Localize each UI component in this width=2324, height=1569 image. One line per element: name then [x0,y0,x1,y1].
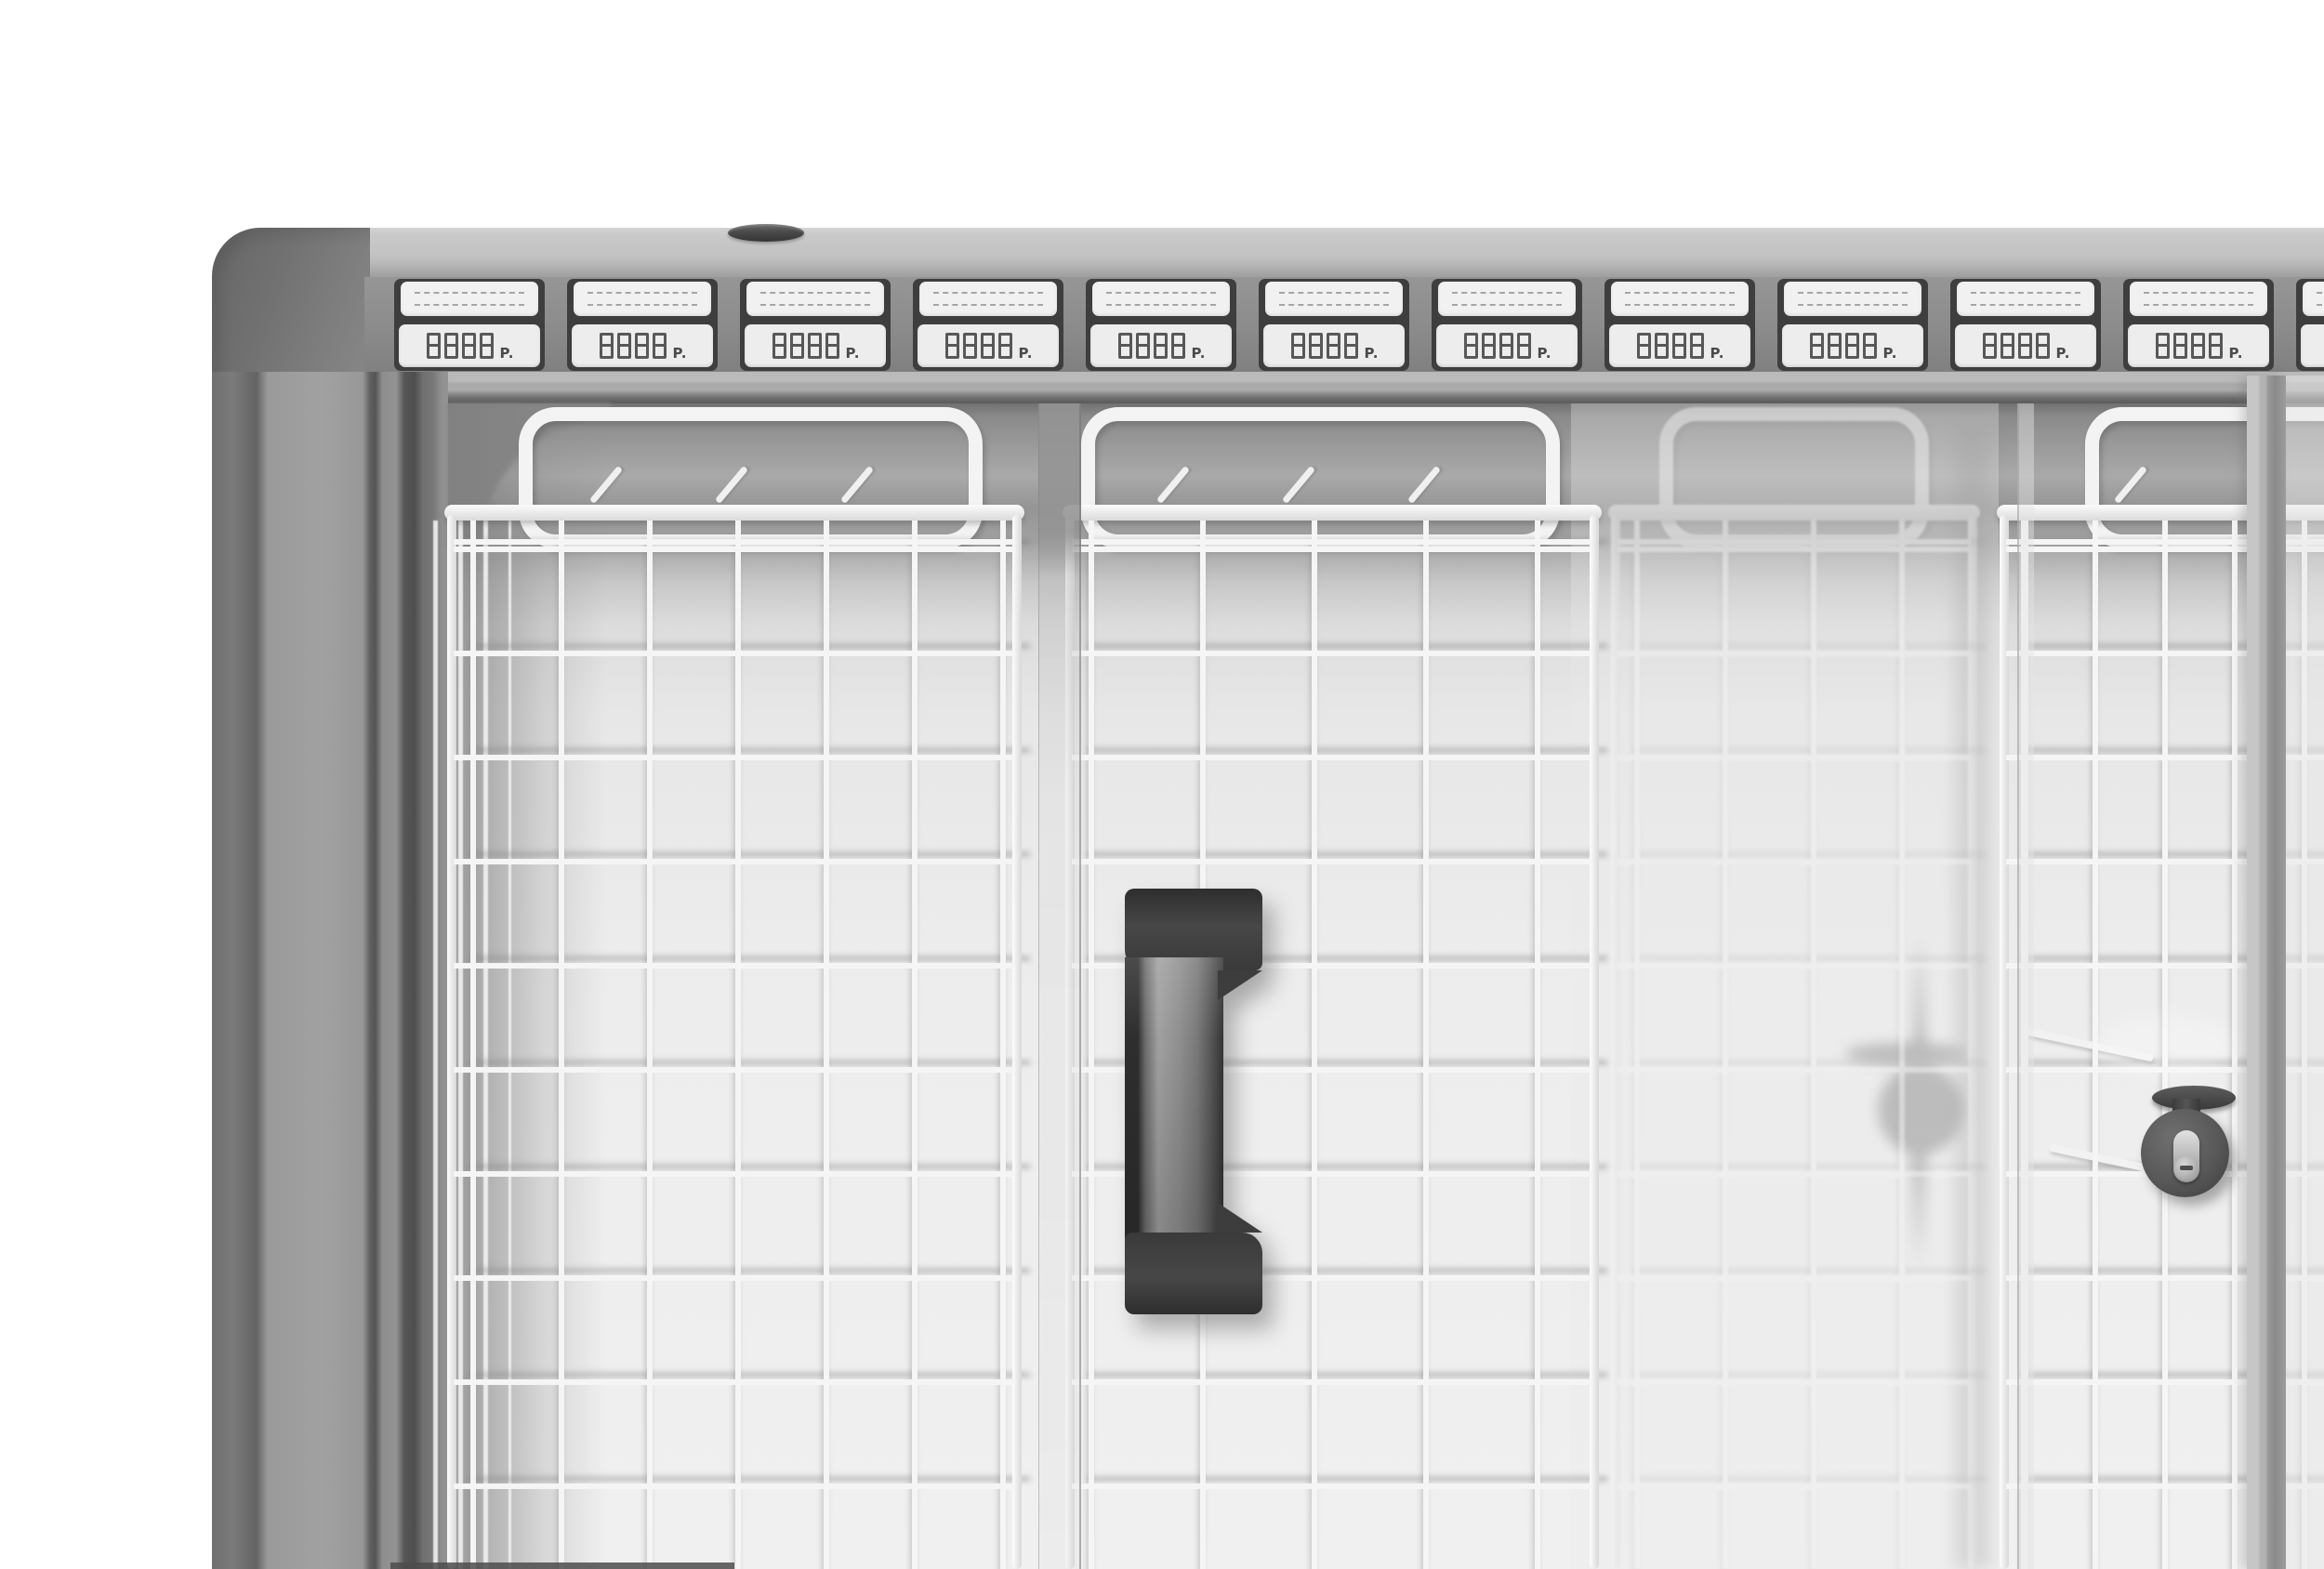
seven-segment-digit-8 [2036,333,2050,359]
price-tag: P. [1259,279,1409,371]
price-tag-display: P. [2301,324,2324,367]
label-dashed-line [2144,304,2253,306]
seven-segment-digits [1116,333,1187,359]
glass-pane-haze [1571,403,1999,1569]
label-dashed-line [1279,292,1389,294]
label-dashed-line [415,304,524,306]
label-dashed-line [588,304,697,306]
label-dashed-line [1625,304,1735,306]
label-dashed-line [2317,304,2324,306]
handle-shoulder [1218,1203,1262,1233]
lid-stop-knob[interactable] [728,224,804,242]
price-tag-display: P. [1436,324,1578,367]
price-tag-name-label [2130,282,2267,316]
price-tag: P. [1950,279,2101,371]
label-dashed-line [415,292,524,294]
currency-label: P. [673,345,688,367]
currency-label: P. [1192,345,1207,367]
seven-segment-digit-8 [1517,333,1531,359]
price-tag: P. [1086,279,1236,371]
seven-segment-digit-8 [1863,333,1877,359]
seven-segment-digit-8 [1482,333,1496,359]
freezer-top-surface [364,228,2324,279]
label-dashed-line [1971,292,2080,294]
price-tag-name-label [1784,282,1921,316]
price-tag-name-label [2303,282,2324,316]
currency-label: P. [846,345,861,367]
seven-segment-digit-8 [600,333,614,359]
price-tag: P. [740,279,891,371]
basket-rim [444,505,1024,521]
handle-shoulder [1218,970,1262,1000]
seven-segment-digit-8 [1464,333,1478,359]
seven-segment-digit-8 [998,333,1012,359]
seven-segment-digit-8 [1154,333,1168,359]
price-tag: P. [567,279,718,371]
freezer-left-wall [212,372,448,1569]
seven-segment-digit-8 [444,333,458,359]
price-tag-name-label [1957,282,2094,316]
seven-segment-digit-8 [1171,333,1185,359]
seven-segment-digit-8 [1672,333,1686,359]
seven-segment-digit-8 [808,333,822,359]
seven-segment-digits [1981,333,2052,359]
price-tag: P. [2296,279,2324,371]
seven-segment-digit-8 [617,333,631,359]
seven-segment-digit-8 [2000,333,2014,359]
seven-segment-digit-8 [462,333,476,359]
price-tag-name-label [1438,282,1576,316]
seven-segment-digits [598,333,668,359]
seven-segment-digits [771,333,841,359]
price-tag-display: P. [1090,324,1232,367]
currency-label: P. [2056,345,2071,367]
currency-label: P. [1883,345,1898,367]
seven-segment-digit-8 [1828,333,1842,359]
basket-wire-grid [454,521,1015,1569]
seven-segment-digit-8 [1118,333,1132,359]
seven-segment-digit-8 [2018,333,2032,359]
label-dashed-line [1279,304,1389,306]
seven-segment-digits [1462,333,1533,359]
seven-segment-digit-8 [790,333,804,359]
glass-lid-frame-post[interactable] [2247,376,2286,1569]
price-tag-display: P. [1955,324,2096,367]
seven-segment-digit-8 [1136,333,1150,359]
seven-segment-digit-8 [945,333,959,359]
label-dashed-line [588,292,697,294]
label-dashed-line [2317,292,2324,294]
price-tag: P. [1432,279,1582,371]
price-tag-display: P. [745,324,886,367]
price-tag-name-label [574,282,711,316]
currency-label: P. [2229,345,2244,367]
price-tag-display: P. [1782,324,1923,367]
seven-segment-digit-8 [2173,333,2187,359]
glass-lid-edge [2017,403,2034,1569]
handle-bottom-cap [1125,1233,1262,1314]
price-tag-display: P. [1609,324,1750,367]
seven-segment-digit-8 [1344,333,1358,359]
seven-segment-digits [1635,333,1706,359]
label-dashed-line [1106,292,1216,294]
seven-segment-digits [1289,333,1360,359]
price-tag-name-label [746,282,884,316]
label-dashed-line [1625,292,1735,294]
label-dashed-line [1452,292,1562,294]
keyhole-slot-icon [2180,1166,2193,1170]
price-tag-name-label [919,282,1057,316]
glass-pane-haze [2286,376,2324,1569]
label-dashed-line [760,292,870,294]
glass-reflection [2096,1013,2236,1078]
seven-segment-digits [425,333,495,359]
label-dashed-line [1452,304,1562,306]
seven-segment-digit-8 [1499,333,1513,359]
price-tag-display: P. [1263,324,1405,367]
price-tag-name-label [1611,282,1749,316]
label-dashed-line [1106,304,1216,306]
seven-segment-digit-8 [772,333,786,359]
seven-segment-digit-8 [2156,333,2170,359]
seven-segment-digit-8 [635,333,649,359]
seven-segment-digit-8 [1983,333,1997,359]
label-dashed-line [1798,304,1908,306]
label-dashed-line [933,304,1043,306]
seven-segment-digit-8 [1637,333,1651,359]
seven-segment-digits [1808,333,1879,359]
seven-segment-digit-8 [2191,333,2205,359]
label-dashed-line [2144,292,2253,294]
wire-basket [444,402,1024,1569]
currency-label: P. [1710,345,1725,367]
price-tag-display: P. [2128,324,2269,367]
seven-segment-digit-8 [1810,333,1824,359]
seven-segment-digit-8 [1291,333,1305,359]
seven-segment-digits [2154,333,2225,359]
price-tag: P. [1777,279,1928,371]
bottom-frame-shadow [390,1562,734,1569]
freezer-product-render: P. P. P. [0,0,2324,1569]
seven-segment-digit-8 [825,333,839,359]
seven-segment-digit-8 [1690,333,1704,359]
seven-segment-digit-8 [963,333,977,359]
currency-label: P. [1019,345,1034,367]
price-tag: P. [2123,279,2274,371]
currency-label: P. [1365,345,1380,367]
rail-bottom-frame [364,372,2324,405]
price-tag-display: P. [572,324,713,367]
seven-segment-digit-8 [2209,333,2223,359]
seven-segment-digit-8 [1327,333,1340,359]
price-tag-display: P. [918,324,1059,367]
label-dashed-line [1971,304,2080,306]
freezer-corner-end-cap [212,228,370,380]
label-dashed-line [933,292,1043,294]
price-tag-rail: P. P. P. [364,277,2324,372]
seven-segment-digit-8 [981,333,995,359]
seven-segment-digit-8 [653,333,667,359]
seven-segment-digit-8 [1845,333,1859,359]
basket-rim [1063,505,1602,521]
handle-stem [1125,957,1223,1246]
currency-label: P. [1538,345,1552,367]
price-tag-name-label [1092,282,1230,316]
seven-segment-digits [944,333,1014,359]
price-tag-name-label [401,282,538,316]
price-tag: P. [913,279,1063,371]
label-dashed-line [1798,292,1908,294]
seven-segment-digit-8 [1309,333,1323,359]
currency-label: P. [500,345,515,367]
label-dashed-line [760,304,870,306]
price-tag: P. [1604,279,1755,371]
glass-lid-edge [1038,403,1081,1569]
price-tag-display: P. [399,324,540,367]
price-tag-name-label [1265,282,1403,316]
seven-segment-digit-8 [480,333,494,359]
seven-segment-digit-8 [1655,333,1669,359]
glass-lid-handle[interactable] [1125,889,1262,1314]
seven-segment-digit-8 [427,333,441,359]
price-tag: P. [394,279,545,371]
